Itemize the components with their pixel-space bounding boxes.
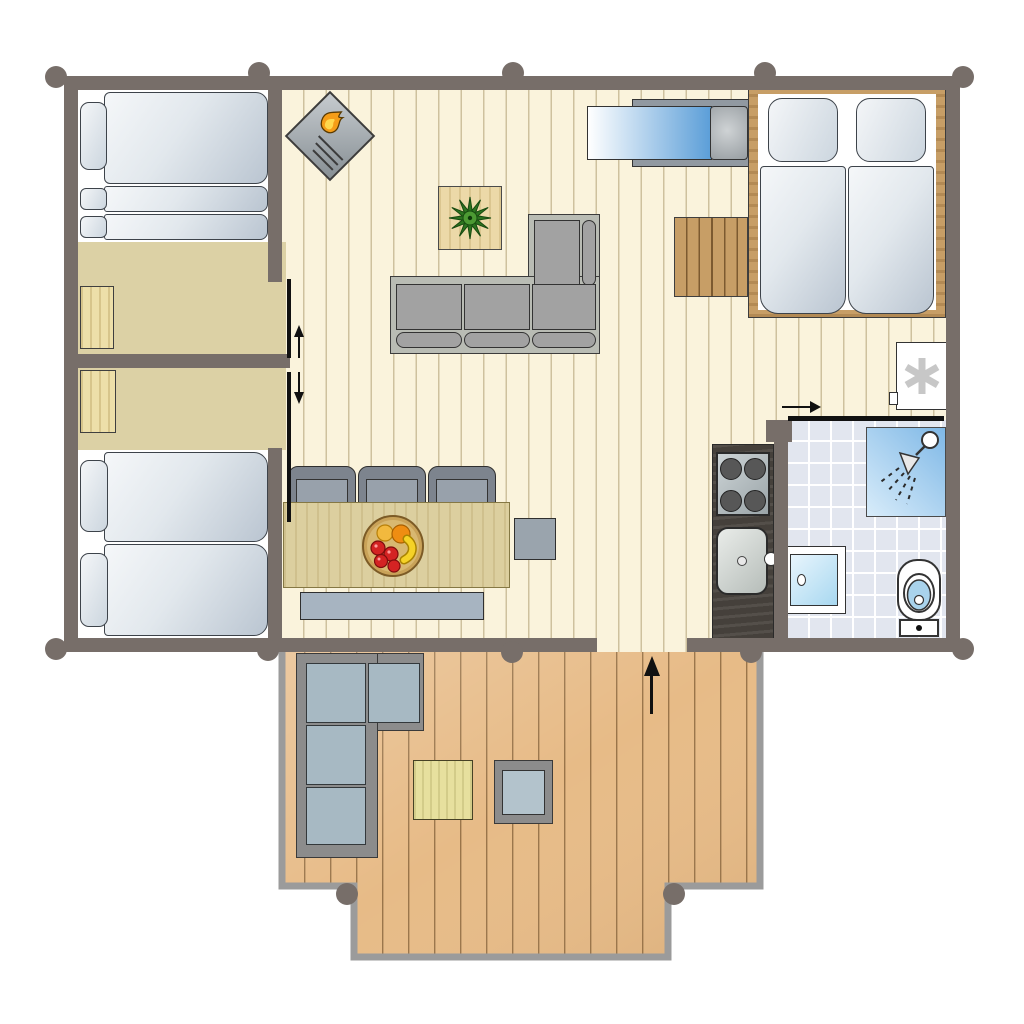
log-post — [257, 639, 279, 661]
bathroom-arrow-shaft — [782, 406, 812, 408]
shower-head-icon — [866, 427, 946, 517]
dining-bench — [300, 592, 484, 620]
sofa-seat-roll — [396, 332, 462, 348]
log-post — [501, 641, 523, 663]
hob-burner — [744, 458, 766, 480]
sliding-door-bunk-bedroom — [287, 279, 291, 358]
pillow — [80, 460, 108, 532]
hob-burner — [744, 490, 766, 512]
bunk-bed-mattress — [104, 92, 268, 184]
wall-right — [946, 76, 960, 652]
wall-bathroom-left — [774, 420, 788, 638]
washbasin-drain — [797, 574, 806, 586]
log-post — [502, 62, 524, 84]
slide-arrow-down-icon — [294, 392, 304, 404]
daybed-cabinet-pad — [710, 106, 748, 160]
wardrobe — [80, 370, 116, 433]
twin-bed-mattress — [104, 544, 268, 636]
log-post — [663, 883, 685, 905]
sliding-door-bathroom — [788, 416, 944, 421]
heater-knob — [889, 392, 898, 405]
log-post — [45, 638, 67, 660]
sofa-seat-roll — [532, 332, 596, 348]
wardrobe — [80, 286, 114, 349]
outdoor-sofa-cushion — [306, 787, 366, 845]
log-post — [740, 641, 762, 663]
log-post — [952, 638, 974, 660]
double-bed-mattress — [760, 166, 846, 314]
toilet — [896, 558, 942, 638]
log-post — [248, 62, 270, 84]
bathroom-slide-arrow-icon — [810, 401, 821, 413]
wall-bottom-right — [687, 638, 960, 652]
pillow — [768, 98, 838, 162]
sliding-door-twin-bedroom — [287, 372, 291, 522]
wall-bedroom-divider-bottom — [268, 448, 282, 638]
slide-arrow-up-icon — [294, 325, 304, 337]
plant-icon — [448, 196, 492, 240]
outdoor-sofa-cushion — [368, 663, 420, 723]
stairs — [674, 217, 748, 297]
fruit-bowl-icon — [361, 514, 425, 578]
pillow — [856, 98, 926, 162]
outdoor-sofa-cushion — [306, 725, 366, 785]
pillow — [80, 216, 107, 238]
floor-plan — [0, 0, 1024, 1024]
pillow — [80, 553, 108, 627]
sink-drain — [737, 556, 747, 566]
hob-burner — [720, 458, 742, 480]
bunk-bed-mattress — [104, 186, 268, 212]
outdoor-table-top — [502, 770, 545, 815]
hob-burner — [720, 490, 742, 512]
sofa-cushion — [464, 284, 530, 330]
sofa-cushion — [396, 284, 462, 330]
log-post — [336, 883, 358, 905]
sofa-cushion — [534, 220, 580, 286]
pillow — [80, 188, 107, 210]
outdoor-sofa-cushion — [306, 663, 366, 723]
slide-arrow-up-shaft — [298, 336, 300, 358]
daybed-cabinet-blue-panel — [587, 106, 712, 160]
sofa-cushion — [582, 220, 596, 286]
double-bed-mattress — [848, 166, 934, 314]
outdoor-coffee-table — [413, 760, 473, 820]
slide-arrow-down-shaft — [298, 372, 300, 394]
sofa-seat-roll — [464, 332, 530, 348]
log-post — [754, 62, 776, 84]
sofa-cushion — [532, 284, 596, 330]
stool — [514, 518, 556, 560]
entrance-arrow-icon — [644, 656, 660, 676]
entrance-arrow-shaft — [650, 674, 653, 714]
fan-asterisk-icon — [902, 356, 942, 396]
twin-bed-mattress — [104, 452, 268, 542]
pillow — [80, 102, 107, 170]
log-post — [952, 66, 974, 88]
wall-left — [64, 76, 78, 652]
log-post — [45, 66, 67, 88]
bunk-bed-mattress — [104, 214, 268, 240]
wall-between-bedrooms — [78, 354, 290, 368]
wall-bedroom-divider-top — [268, 90, 282, 282]
